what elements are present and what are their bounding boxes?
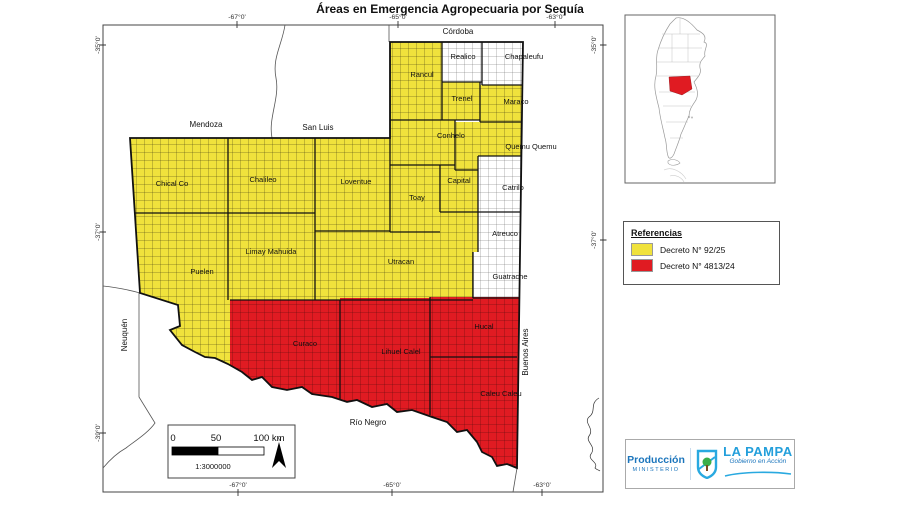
province-slogan: Gobierno en Acción <box>723 459 793 466</box>
label-atreuco: Atreuco <box>492 229 518 238</box>
legend-swatch-red <box>631 259 653 272</box>
label-chapaleufu: Chapaleufu <box>505 52 543 61</box>
legend-box: Referencias Decreto N° 92/25 Decreto N° … <box>623 221 780 285</box>
label-san-luis: San Luis <box>302 123 333 132</box>
ministry-subtitle: MINISTERIO <box>627 467 685 473</box>
coord-bottom-63: -63°0' <box>533 481 551 489</box>
label-chalileo: Chalileo <box>249 175 276 184</box>
province-name: LA PAMPA <box>723 445 793 459</box>
label-maraco: Maraco <box>503 97 528 106</box>
label-rio-negro: Río Negro <box>350 418 387 427</box>
coord-left-39: -39°0' <box>94 424 102 442</box>
scale-bar: 0 50 100 km 1:3000000 N <box>168 425 295 478</box>
legend-swatch-yellow <box>631 243 653 256</box>
label-cordoba: Córdoba <box>443 27 474 36</box>
label-capital: Capital <box>447 176 471 185</box>
scale-segment-black <box>172 447 218 455</box>
dept-conhelo <box>390 120 455 165</box>
coord-top-63: -63°0' <box>546 13 564 21</box>
dept-chical-co <box>130 138 228 213</box>
la-pampa-shield-icon <box>696 449 718 479</box>
coord-top-65: -65°0' <box>389 13 407 21</box>
coord-top-67: -67°0' <box>228 13 246 21</box>
coord-right-37: -37°0' <box>590 231 598 249</box>
legend-label-decreto-92-25: Decreto N° 92/25 <box>660 245 725 255</box>
legend-item-decreto-92-25: Decreto N° 92/25 <box>631 243 772 256</box>
label-curaco: Curaco <box>293 339 317 348</box>
coord-left-35: -35°0' <box>94 36 102 54</box>
ministry-wordmark: Producción MINISTERIO <box>627 455 685 473</box>
label-neuquen: Neuquén <box>120 319 129 351</box>
coord-bottom-65: -65°0' <box>383 481 401 489</box>
coord-bottom-67: -67°0' <box>229 481 247 489</box>
scale-ratio: 1:3000000 <box>195 462 230 471</box>
scale-0: 0 <box>170 433 175 444</box>
dept-realico <box>442 42 482 82</box>
coord-right-35: -35°0' <box>590 36 598 54</box>
label-conhelo: Conhelo <box>437 131 465 140</box>
logo-divider <box>690 448 691 480</box>
dept-chapaleufu <box>482 42 523 85</box>
dept-limay-mahuida <box>228 213 315 300</box>
label-hucal: Hucal <box>474 322 494 331</box>
dept-capital <box>440 165 478 212</box>
province-wordmark: LA PAMPA Gobierno en Acción <box>723 445 793 482</box>
dept-rancul <box>390 42 442 120</box>
label-limay-mahuida: Limay Mahuida <box>246 247 298 256</box>
label-buenos-aires: Buenos Aires <box>521 328 530 375</box>
label-caleu-caleu: Caleu Caleu <box>480 389 521 398</box>
ministry-name: Producción <box>627 455 685 467</box>
coord-left-37: -37°0' <box>94 223 102 241</box>
label-quemu-quemu: Quemu Quemu <box>505 142 556 151</box>
label-rancul: Rancul <box>410 70 434 79</box>
label-lihuel-calel: Lihuel Calel <box>381 347 421 356</box>
label-puelen: Puelen <box>190 267 213 276</box>
label-loventue: Loventue <box>341 177 372 186</box>
legend-label-decreto-4813-24: Decreto N° 4813/24 <box>660 261 735 271</box>
label-chical-co: Chical Co <box>156 179 189 188</box>
label-guatrache: Guatrache <box>492 272 527 281</box>
label-realico: Realico <box>450 52 475 61</box>
label-trenel: Trenel <box>452 94 473 103</box>
inset-locator-map <box>625 15 775 183</box>
north-label: N <box>277 437 281 443</box>
legend-title: Referencias <box>631 228 772 238</box>
label-utracan: Utracan <box>388 257 414 266</box>
legend-item-decreto-4813-24: Decreto N° 4813/24 <box>631 259 772 272</box>
logo-swoosh <box>723 471 793 478</box>
scale-segment-white <box>218 447 264 455</box>
government-logo: Producción MINISTERIO LA PAMPA Gobierno … <box>625 439 795 489</box>
scale-50: 50 <box>211 433 222 444</box>
label-mendoza: Mendoza <box>190 120 223 129</box>
label-catrilo: Catrilo <box>502 183 524 192</box>
label-toay: Toay <box>409 193 425 202</box>
